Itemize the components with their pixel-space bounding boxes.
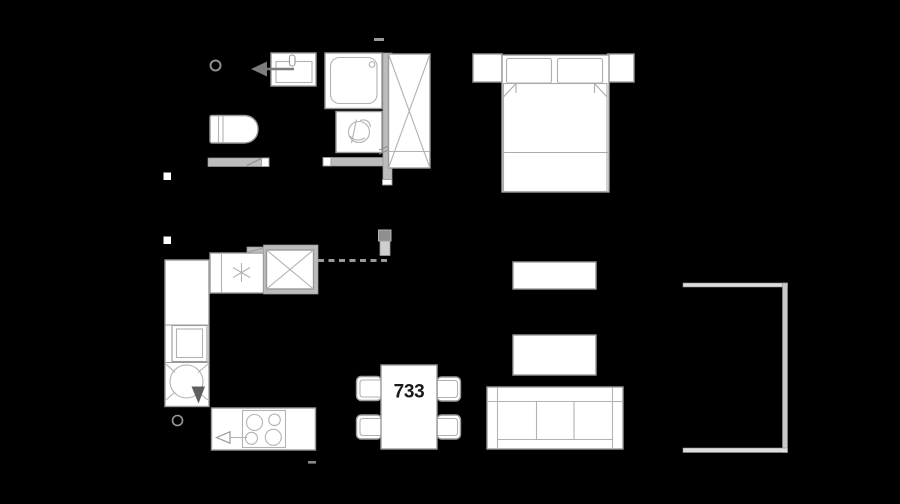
shower (325, 53, 382, 109)
wall-tick-upper (164, 173, 172, 181)
wall-mark-bottom (308, 461, 316, 464)
pillow-right (558, 59, 603, 84)
tall-cabinet-x (264, 245, 319, 294)
table-label: 733 (394, 382, 425, 403)
door-opening-wall-right (323, 158, 383, 167)
fridge-with-snowflake-icon (210, 253, 264, 293)
blanket (504, 84, 610, 192)
chair-bottom-left (357, 415, 382, 439)
sideboard (513, 262, 596, 289)
washing-machine (336, 112, 382, 153)
double-bed (502, 55, 609, 192)
wall-mark-top (374, 38, 384, 41)
chair-top-right (437, 377, 461, 401)
wall-tick-lower (164, 237, 172, 245)
wardrobe (389, 54, 431, 168)
dining-table: 733 (381, 365, 437, 449)
wall-stub (379, 230, 392, 256)
nightstand-right (608, 54, 635, 82)
chair-bottom-right (437, 415, 461, 439)
toilet (210, 116, 258, 144)
coffee-table (513, 335, 596, 375)
floor-plan: 733 (0, 0, 900, 504)
nightstand-left (473, 54, 502, 82)
cooktop-counter (212, 408, 316, 450)
chair-top-left (357, 377, 382, 401)
pillow-left (507, 59, 552, 84)
sofa (487, 387, 623, 449)
floor-plan-canvas: 733 (0, 0, 900, 504)
counter-step (247, 247, 266, 253)
door-opening-wall-left (208, 158, 269, 167)
